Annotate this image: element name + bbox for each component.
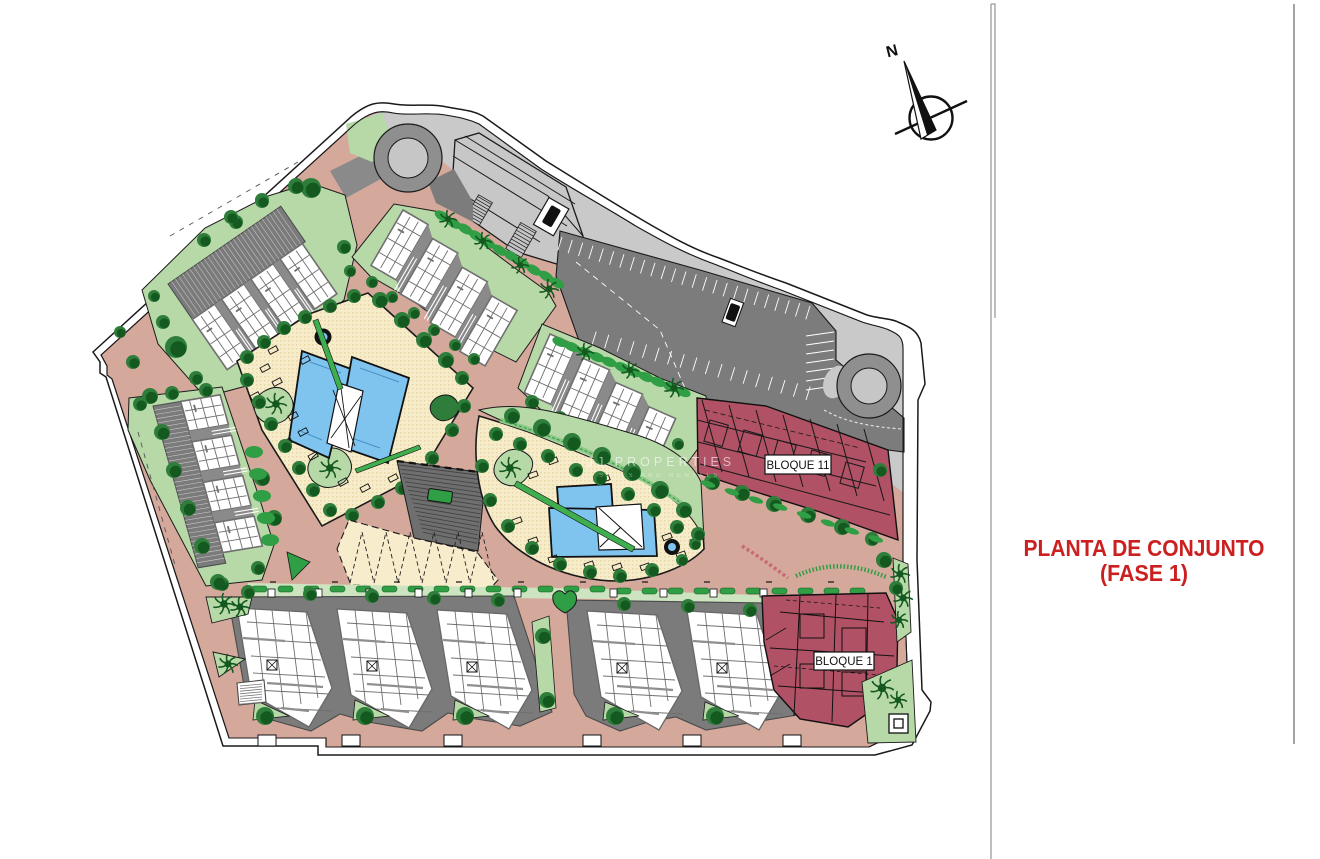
svg-text:(FASE 1): (FASE 1) [1100, 560, 1188, 586]
svg-text:N: N [885, 42, 900, 61]
svg-text:JJ PROPERTIES: JJ PROPERTIES [587, 455, 735, 469]
svg-text:SALES AND RENTALS: SALES AND RENTALS [599, 473, 721, 479]
svg-text:PLANTA DE CONJUNTO: PLANTA DE CONJUNTO [1024, 535, 1265, 561]
svg-text:BLOQUE 11: BLOQUE 11 [766, 460, 829, 472]
svg-text:BLOQUE 1: BLOQUE 1 [815, 656, 873, 668]
